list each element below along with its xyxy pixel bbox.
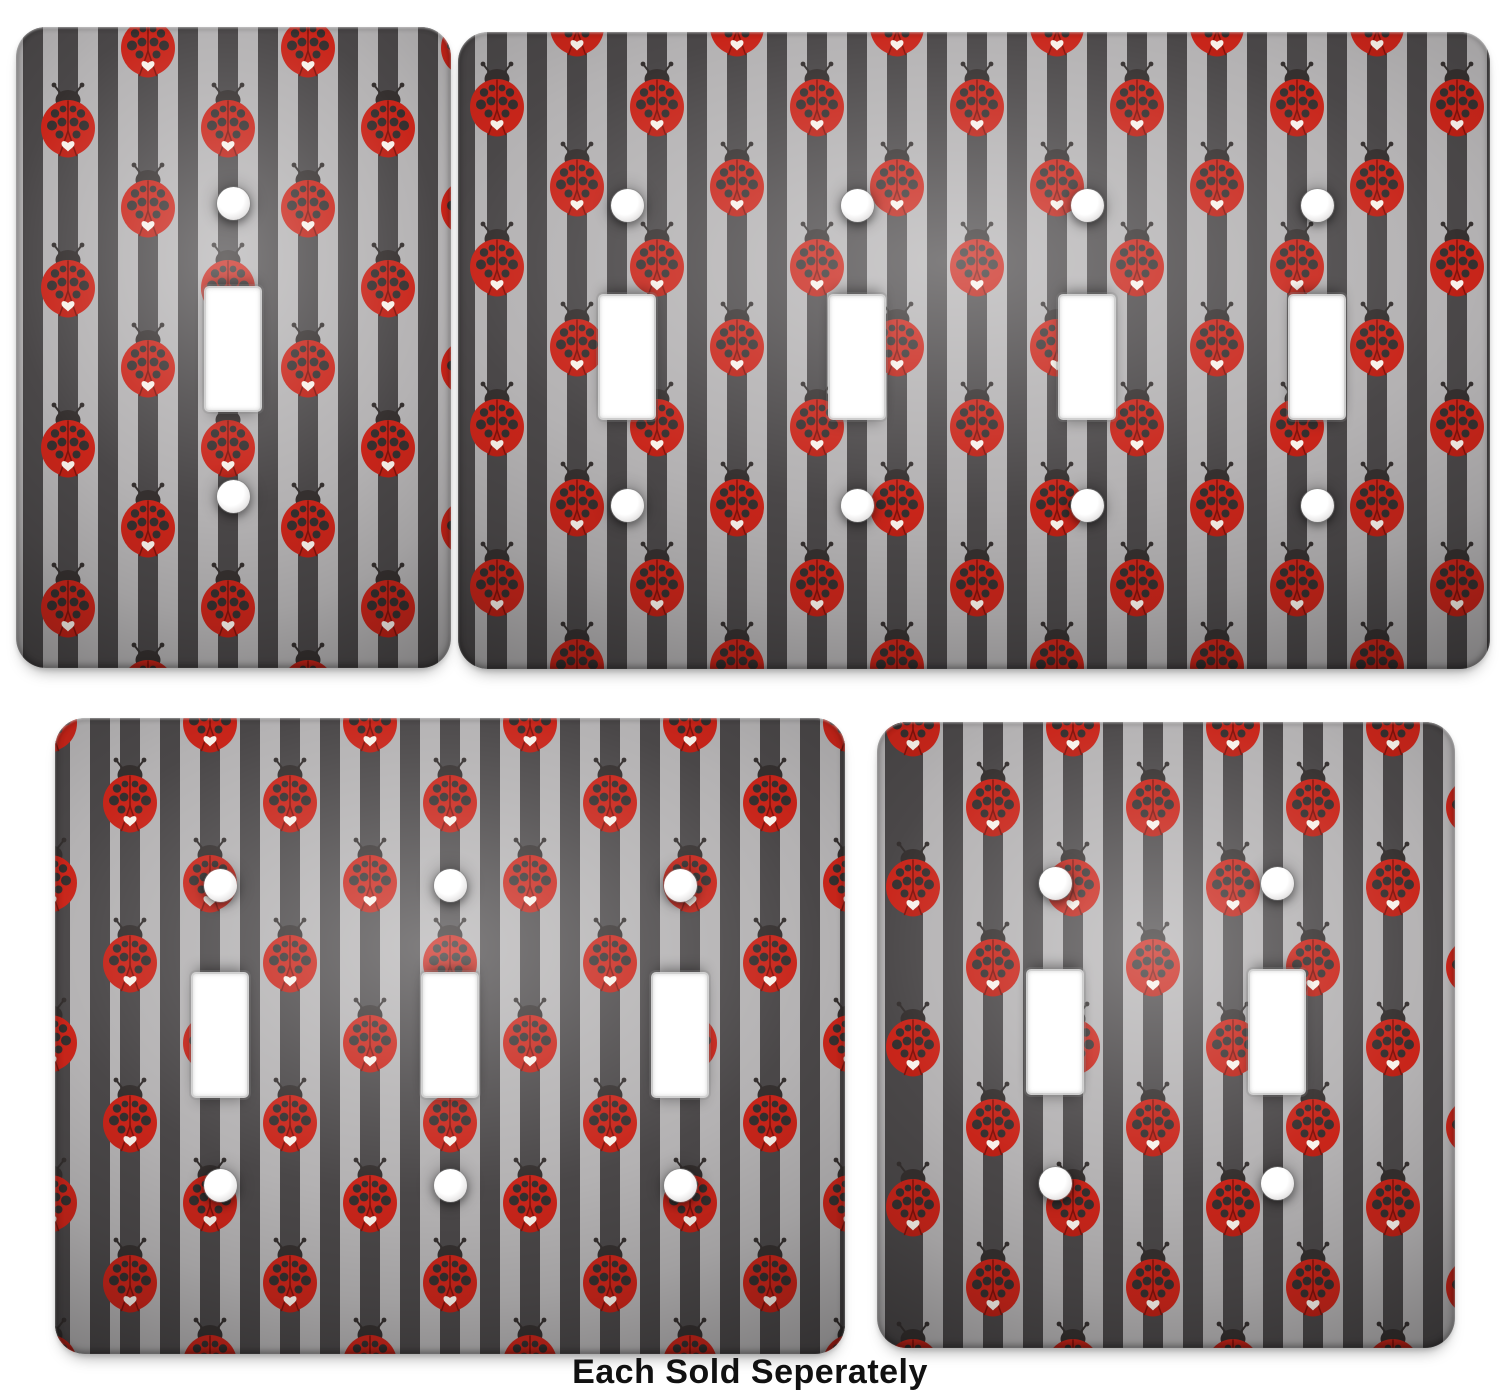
- ladybug: [281, 323, 335, 398]
- ladybug: [1190, 142, 1244, 217]
- ladybug: [201, 563, 255, 638]
- screw-hole: [841, 489, 874, 522]
- ladybug: [1206, 1322, 1260, 1348]
- ladybug: [55, 718, 77, 753]
- toggle-switch-opening: [1290, 296, 1344, 418]
- screw-hole: [841, 189, 874, 222]
- toggle-switch-opening: [600, 296, 654, 418]
- ladybug: [1206, 722, 1260, 757]
- ladybug: [630, 542, 684, 617]
- ladybug: [1110, 62, 1164, 137]
- screw-hole: [1039, 867, 1072, 900]
- ladybug: [1366, 842, 1420, 917]
- ladybug: [55, 838, 77, 913]
- ladybug: [630, 62, 684, 137]
- ladybug: [1270, 62, 1324, 137]
- ladybug: [281, 643, 335, 668]
- ladybug: [1190, 32, 1244, 57]
- ladybug: [423, 758, 477, 833]
- ladybug: [1190, 622, 1244, 669]
- ladybug: [550, 462, 604, 537]
- ladybug: [743, 1238, 797, 1313]
- ladybug: [790, 542, 844, 617]
- ladybug: [361, 83, 415, 158]
- ladybug: [503, 1318, 557, 1354]
- switch-plate-double-gang: [877, 722, 1455, 1348]
- ladybug: [1190, 302, 1244, 377]
- ladybug: [1446, 762, 1455, 837]
- ladybug: [1206, 1162, 1260, 1237]
- screw-hole: [1039, 1167, 1072, 1200]
- ladybug: [343, 998, 397, 1073]
- ladybug: [361, 243, 415, 318]
- toggle-switch-opening: [193, 974, 247, 1096]
- screw-hole: [664, 869, 697, 902]
- ladybug: [263, 918, 317, 993]
- ladybug: [583, 1078, 637, 1153]
- ladybug: [886, 722, 940, 757]
- ladybug: [870, 462, 924, 537]
- ladybug: [343, 1158, 397, 1233]
- ladybug: [823, 998, 845, 1073]
- ladybug: [103, 1078, 157, 1153]
- ladybug: [41, 243, 95, 318]
- ladybug: [1030, 622, 1084, 669]
- ladybug: [1430, 222, 1484, 297]
- ladybug: [361, 403, 415, 478]
- toggle-switch-opening: [1250, 971, 1304, 1093]
- ladybug: [470, 382, 524, 457]
- product-collage: Each Sold Seperately: [0, 0, 1500, 1394]
- ladybug: [950, 62, 1004, 137]
- ladybug: [1126, 1082, 1180, 1157]
- ladybug: [823, 1158, 845, 1233]
- ladybug: [550, 622, 604, 669]
- ladybug: [1110, 382, 1164, 457]
- screw-hole: [217, 480, 250, 513]
- ladybug: [710, 462, 764, 537]
- ladybug: [503, 1158, 557, 1233]
- ladybug: [1126, 922, 1180, 997]
- screw-hole: [1071, 189, 1104, 222]
- ladybug: [1350, 302, 1404, 377]
- ladybug: [1206, 842, 1260, 917]
- ladybug: [1430, 62, 1484, 137]
- ladybug: [103, 1238, 157, 1313]
- ladybug: [550, 32, 604, 57]
- toggle-switch-opening: [653, 974, 707, 1096]
- ladybug: [710, 622, 764, 669]
- ladybug: [281, 163, 335, 238]
- screw-hole: [1261, 1167, 1294, 1200]
- ladybug: [710, 302, 764, 377]
- ladybug: [583, 758, 637, 833]
- ladybug: [1366, 1322, 1420, 1348]
- ladybug: [966, 1082, 1020, 1157]
- ladybug: [966, 762, 1020, 837]
- screw-hole: [1301, 189, 1334, 222]
- ladybug: [550, 302, 604, 377]
- toggle-switch-opening: [1028, 971, 1082, 1093]
- ladybug: [1126, 1242, 1180, 1317]
- ladybug-pattern: [877, 722, 1455, 1348]
- ladybug: [103, 918, 157, 993]
- ladybug: [263, 1238, 317, 1313]
- ladybug: [121, 27, 175, 78]
- screw-hole: [1261, 867, 1294, 900]
- caption: Each Sold Seperately: [0, 1350, 1500, 1394]
- ladybug: [663, 718, 717, 753]
- ladybug: [1190, 462, 1244, 537]
- ladybug: [710, 32, 764, 57]
- ladybug: [441, 323, 451, 398]
- ladybug: [121, 163, 175, 238]
- ladybug: [503, 998, 557, 1073]
- ladybug: [823, 718, 845, 753]
- screw-hole: [434, 869, 467, 902]
- ladybug: [121, 323, 175, 398]
- ladybug: [743, 1078, 797, 1153]
- ladybug: [121, 483, 175, 558]
- ladybug: [503, 838, 557, 913]
- ladybug: [583, 1238, 637, 1313]
- ladybug: [1350, 462, 1404, 537]
- ladybug: [55, 1318, 77, 1354]
- ladybug: [441, 643, 451, 668]
- ladybug: [1286, 1242, 1340, 1317]
- ladybug: [1286, 762, 1340, 837]
- ladybug: [470, 62, 524, 137]
- ladybug: [423, 1238, 477, 1313]
- ladybug: [281, 27, 335, 78]
- ladybug: [630, 222, 684, 297]
- ladybug: [201, 83, 255, 158]
- screw-hole: [1301, 489, 1334, 522]
- ladybug: [950, 222, 1004, 297]
- ladybug: [823, 838, 845, 913]
- ladybug: [1446, 922, 1455, 997]
- ladybug: [263, 1078, 317, 1153]
- ladybug: [470, 542, 524, 617]
- toggle-switch-opening: [423, 974, 477, 1096]
- ladybug: [886, 1322, 940, 1348]
- ladybug: [343, 718, 397, 753]
- ladybug: [583, 918, 637, 993]
- ladybug: [55, 998, 77, 1073]
- ladybug: [441, 27, 451, 78]
- ladybug: [183, 1318, 237, 1354]
- ladybug: [743, 918, 797, 993]
- screw-hole: [204, 869, 237, 902]
- screw-hole: [611, 189, 644, 222]
- screw-hole: [664, 1169, 697, 1202]
- ladybug: [343, 1318, 397, 1354]
- ladybug: [1110, 542, 1164, 617]
- ladybug: [201, 403, 255, 478]
- ladybug: [743, 758, 797, 833]
- switch-plate-single-gang: [16, 27, 451, 668]
- ladybug: [281, 483, 335, 558]
- ladybug: [1430, 382, 1484, 457]
- ladybug: [1446, 1082, 1455, 1157]
- ladybug: [1046, 1322, 1100, 1348]
- switch-plate-quad-gang: [458, 32, 1490, 669]
- ladybug: [1126, 762, 1180, 837]
- ladybug: [950, 382, 1004, 457]
- ladybug: [1366, 1162, 1420, 1237]
- ladybug: [870, 32, 924, 57]
- screw-hole: [611, 489, 644, 522]
- ladybug: [1110, 222, 1164, 297]
- ladybug: [183, 718, 237, 753]
- ladybug: [343, 838, 397, 913]
- ladybug: [823, 1318, 845, 1354]
- ladybug: [1350, 142, 1404, 217]
- ladybug: [1270, 542, 1324, 617]
- ladybug: [103, 758, 157, 833]
- ladybug: [263, 758, 317, 833]
- ladybug: [1270, 222, 1324, 297]
- ladybug: [966, 1242, 1020, 1317]
- screw-hole: [204, 1169, 237, 1202]
- ladybug: [1366, 722, 1420, 757]
- ladybug: [1030, 32, 1084, 57]
- ladybug: [790, 222, 844, 297]
- ladybug: [470, 222, 524, 297]
- ladybug: [663, 1318, 717, 1354]
- ladybug: [441, 163, 451, 238]
- ladybug: [550, 142, 604, 217]
- ladybug: [1350, 622, 1404, 669]
- ladybug: [41, 83, 95, 158]
- ladybug: [886, 842, 940, 917]
- ladybug: [790, 62, 844, 137]
- ladybug: [950, 542, 1004, 617]
- ladybug: [1046, 722, 1100, 757]
- screw-hole: [1071, 489, 1104, 522]
- switch-plate-triple-gang: [55, 718, 845, 1354]
- ladybug: [1430, 542, 1484, 617]
- ladybug: [1446, 1242, 1455, 1317]
- ladybug: [41, 403, 95, 478]
- ladybug: [503, 718, 557, 753]
- ladybug: [870, 622, 924, 669]
- ladybug: [1350, 32, 1404, 57]
- ladybug: [886, 1162, 940, 1237]
- ladybug: [886, 1002, 940, 1077]
- toggle-switch-opening: [830, 296, 884, 418]
- screw-hole: [434, 1169, 467, 1202]
- toggle-switch-opening: [206, 288, 260, 410]
- ladybug: [441, 483, 451, 558]
- ladybug: [966, 922, 1020, 997]
- ladybug: [55, 1158, 77, 1233]
- ladybug: [361, 563, 415, 638]
- ladybug: [1366, 1002, 1420, 1077]
- ladybug: [41, 563, 95, 638]
- ladybug: [710, 142, 764, 217]
- ladybug: [870, 142, 924, 217]
- screw-hole: [217, 187, 250, 220]
- toggle-switch-opening: [1060, 296, 1114, 418]
- ladybug: [121, 643, 175, 668]
